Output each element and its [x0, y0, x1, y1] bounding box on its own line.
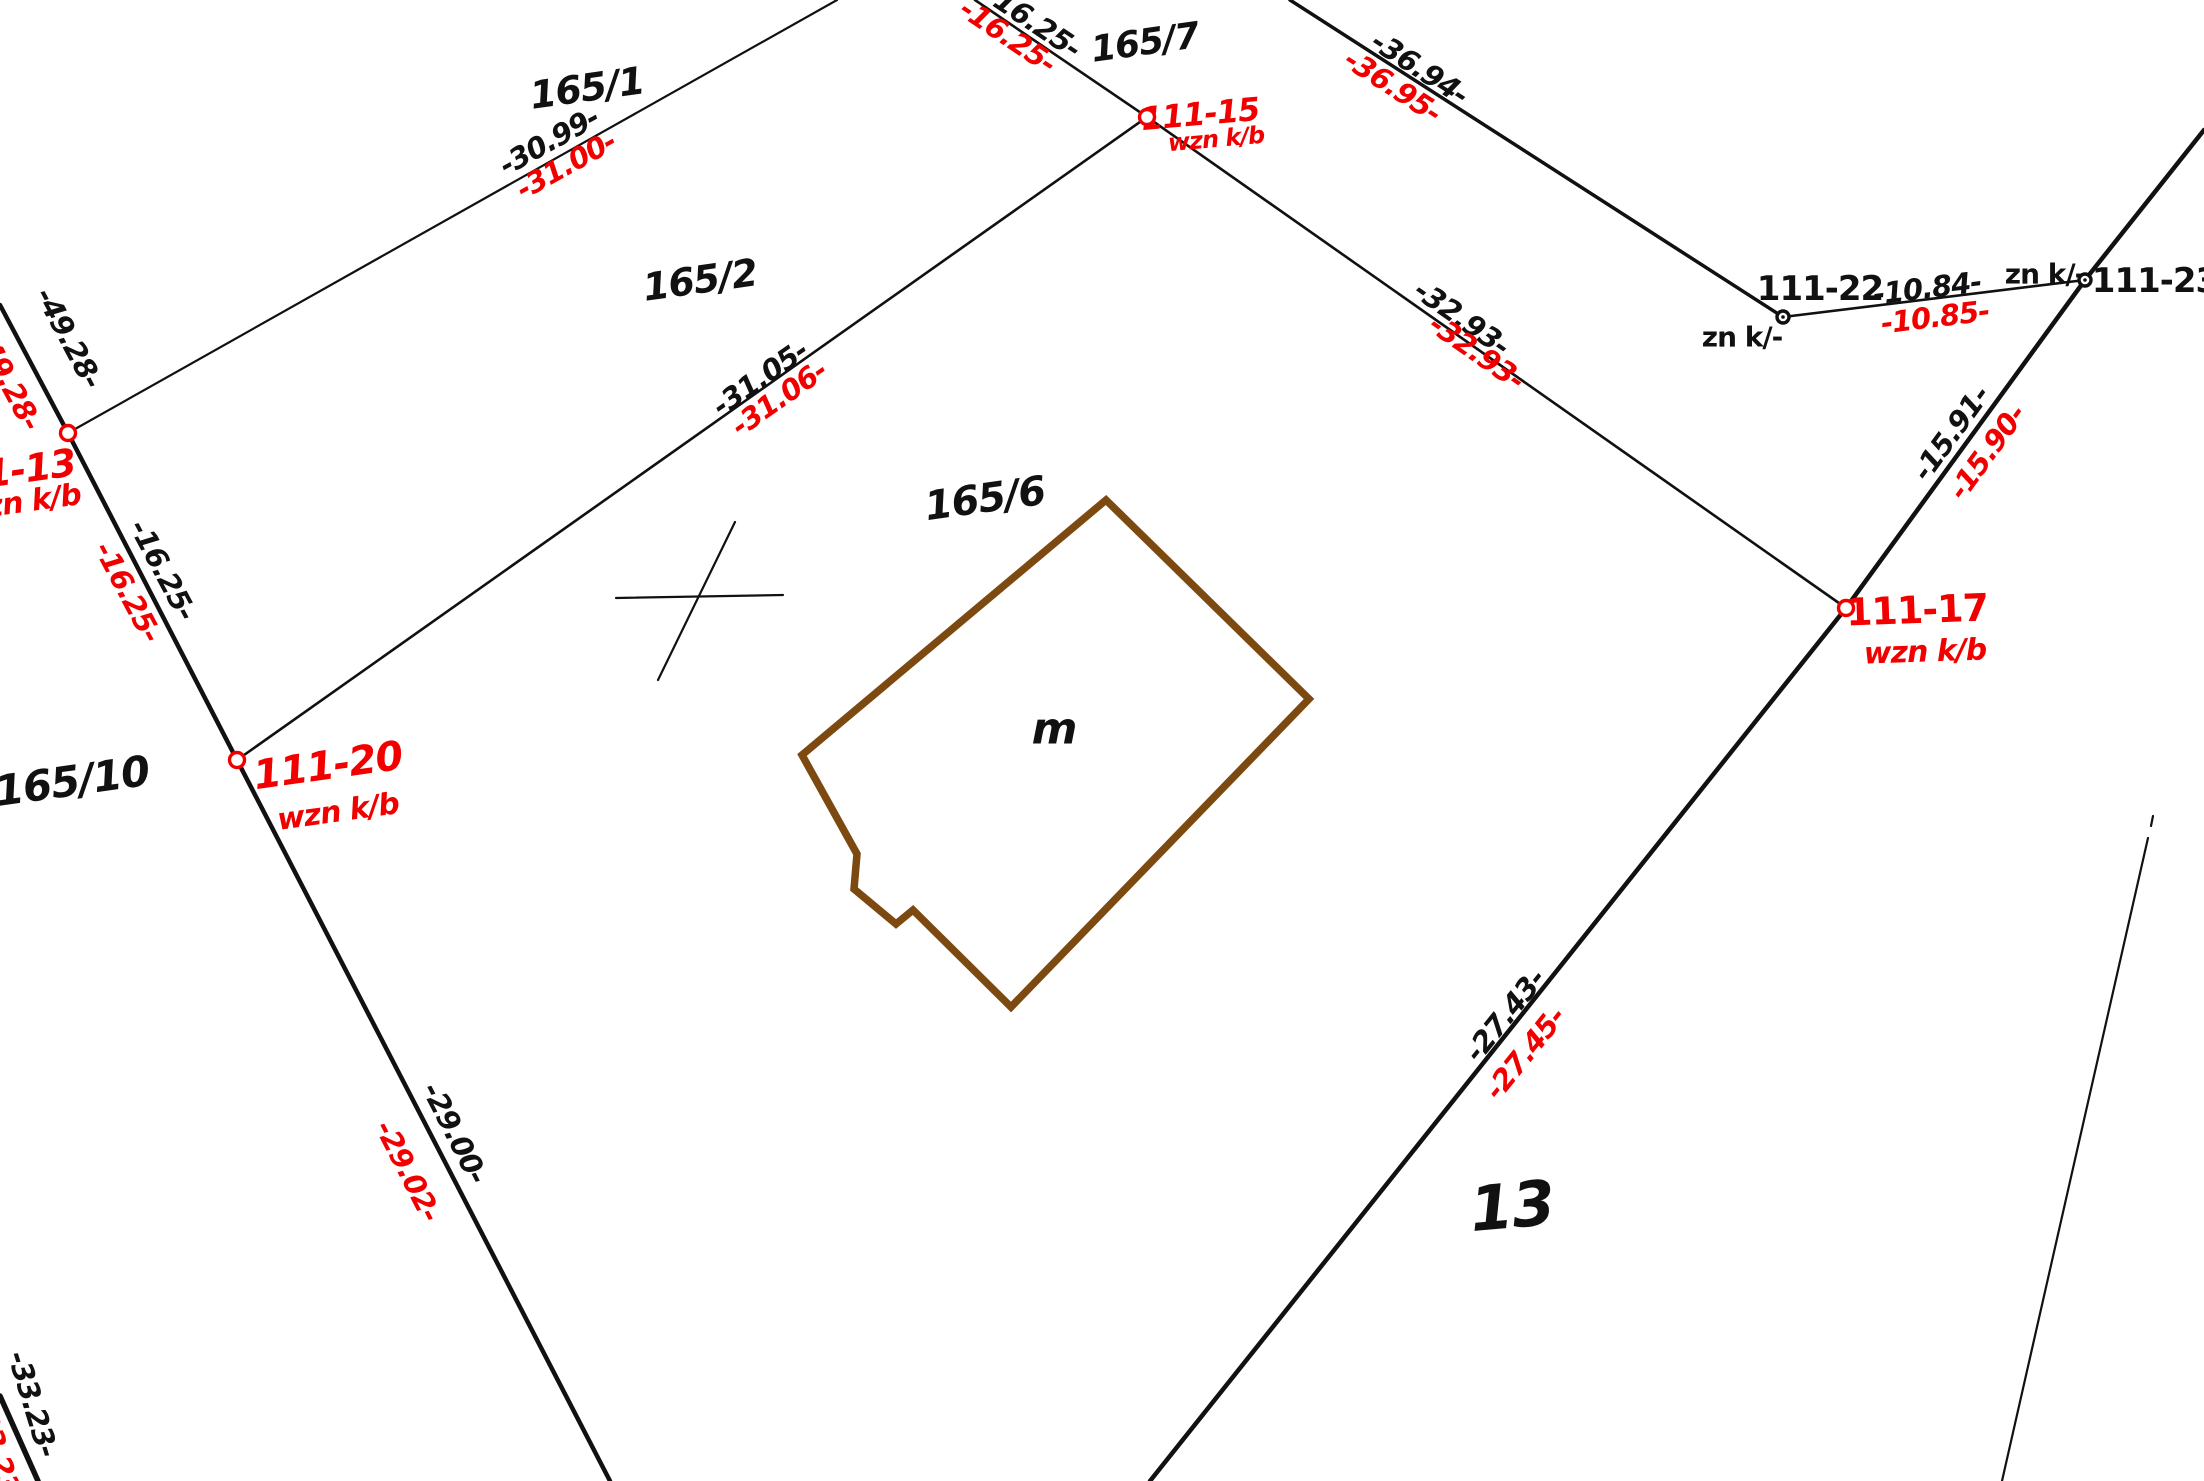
label-111-23: 111-23: [2092, 261, 2204, 301]
boundary-left-mid: [68, 433, 237, 760]
point-111-13: [61, 426, 76, 441]
line-31-05: [237, 117, 1147, 760]
parcel-165-10: 165/10: [0, 746, 152, 816]
dashdot-line: [2002, 838, 2148, 1481]
cadastral-map: 165/1165/2165/6165/7165/1013m-30.99--31.…: [0, 0, 2204, 1481]
label-111-17: 111-17: [1845, 586, 1988, 635]
dashdot-tick: [2151, 816, 2153, 826]
point-111-23-dot: [2083, 278, 2087, 282]
point-111-15: [1140, 110, 1155, 125]
parcel-165-6: 165/6: [922, 468, 1048, 530]
point-111-20: [230, 753, 245, 768]
label-wznkb-17: wzn k/b: [1863, 632, 1987, 671]
boundary-left-lower: [237, 760, 610, 1481]
cross-mark-b: [658, 522, 735, 680]
cadastral-map-stage: 165/1165/2165/6165/7165/1013m-30.99--31.…: [0, 0, 2204, 1481]
parcel-165-2: 165/2: [640, 250, 760, 310]
building-m: m: [1032, 704, 1077, 755]
point-111-17: [1839, 601, 1854, 616]
line-165-1: [68, 0, 837, 433]
label-znk-22: zn k/-: [1702, 321, 1783, 354]
point-111-22-dot: [1781, 315, 1785, 319]
parcel-165-7: 165/7: [1089, 15, 1203, 71]
label-111-22: 111-22: [1757, 269, 1883, 309]
boundary-right-upper: [2085, 130, 2204, 280]
label-znk-23: zn k/-: [2005, 258, 2086, 291]
parcel-13: 13: [1467, 1166, 1557, 1246]
